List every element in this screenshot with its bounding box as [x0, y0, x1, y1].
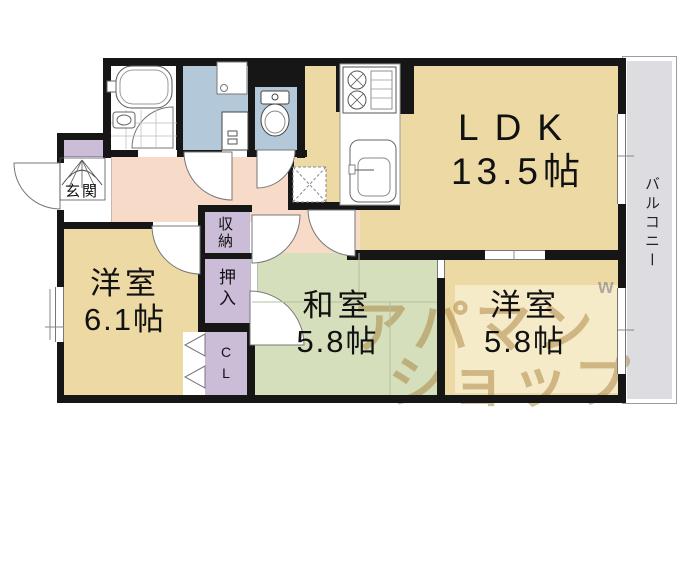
- wall: [618, 374, 626, 403]
- wall: [293, 202, 400, 210]
- wall: [103, 58, 111, 158]
- wall: [198, 205, 252, 212]
- wall: [57, 133, 111, 140]
- genkan-label: 玄関: [58, 180, 106, 201]
- wall: [297, 58, 305, 158]
- japanese-room-label: 和室 5.8帖: [255, 288, 420, 360]
- wall: [57, 395, 625, 403]
- wall: [347, 250, 443, 260]
- window: [617, 288, 626, 374]
- toilet-floor: [255, 87, 297, 150]
- bedroom-west-name: 洋室: [45, 266, 205, 302]
- sliding-door: [437, 260, 445, 278]
- wall: [248, 87, 255, 150]
- bedroom-south-size: 5.8帖: [440, 324, 610, 360]
- wall: [57, 133, 64, 163]
- closet-label: C L: [216, 342, 236, 384]
- genkan-boundary-line: [111, 157, 112, 222]
- japanese-room-name: 和室: [255, 288, 420, 324]
- bedroom-west-label: 洋室 6.1帖: [45, 266, 205, 338]
- entrance-door-arc: [14, 163, 60, 209]
- wall: [247, 332, 255, 397]
- closet-label-l: L: [216, 363, 236, 384]
- ldk-label: LDK 13.5帖: [398, 106, 638, 194]
- bedroom-south-name: 洋室: [440, 288, 610, 324]
- bathtub: [107, 66, 172, 108]
- bedroom-south-label: 洋室 5.8帖: [440, 288, 610, 360]
- fridge-nook-floor: [294, 157, 353, 202]
- closet-label-c: C: [216, 342, 236, 363]
- washroom-floor: [183, 62, 248, 150]
- wall: [545, 250, 625, 260]
- wall: [247, 150, 259, 157]
- bedroom-west-size: 6.1帖: [45, 302, 205, 338]
- washbasin: [113, 112, 135, 128]
- japanese-room-size: 5.8帖: [255, 324, 420, 360]
- hallway-floor-lower: [252, 205, 360, 253]
- bath-door-arc: [132, 107, 173, 148]
- floorplan: アパマン ショップ w: [0, 0, 690, 575]
- closet-door-strip: [183, 332, 205, 395]
- wall: [443, 250, 485, 260]
- vanity-tiles: [111, 110, 177, 149]
- storage-label: 収納: [214, 216, 235, 250]
- balcony-label: バルコニー: [641, 176, 662, 271]
- wall: [57, 222, 153, 229]
- wall: [198, 323, 252, 332]
- wall: [57, 342, 64, 403]
- wall: [293, 150, 307, 157]
- wall: [353, 157, 361, 205]
- ldk-name: LDK: [398, 106, 638, 150]
- ldk-size: 13.5帖: [398, 150, 638, 194]
- wall: [618, 204, 626, 288]
- wall: [103, 150, 138, 157]
- oshiire-label: 押入: [213, 268, 238, 310]
- wall: [336, 58, 344, 112]
- wall: [198, 253, 252, 259]
- wall: [177, 150, 222, 157]
- wall: [176, 62, 183, 150]
- sliding-door: [485, 250, 545, 260]
